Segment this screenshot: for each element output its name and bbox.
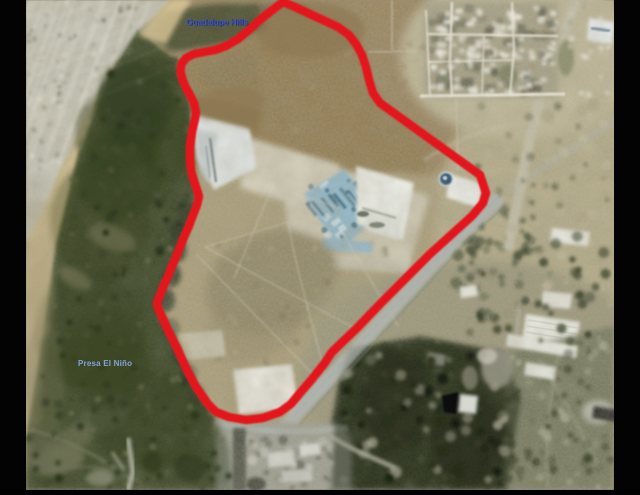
svg-text:Guadalupe Hills: Guadalupe Hills	[186, 17, 248, 27]
svg-text:Presa El Niño: Presa El Niño	[78, 359, 132, 368]
